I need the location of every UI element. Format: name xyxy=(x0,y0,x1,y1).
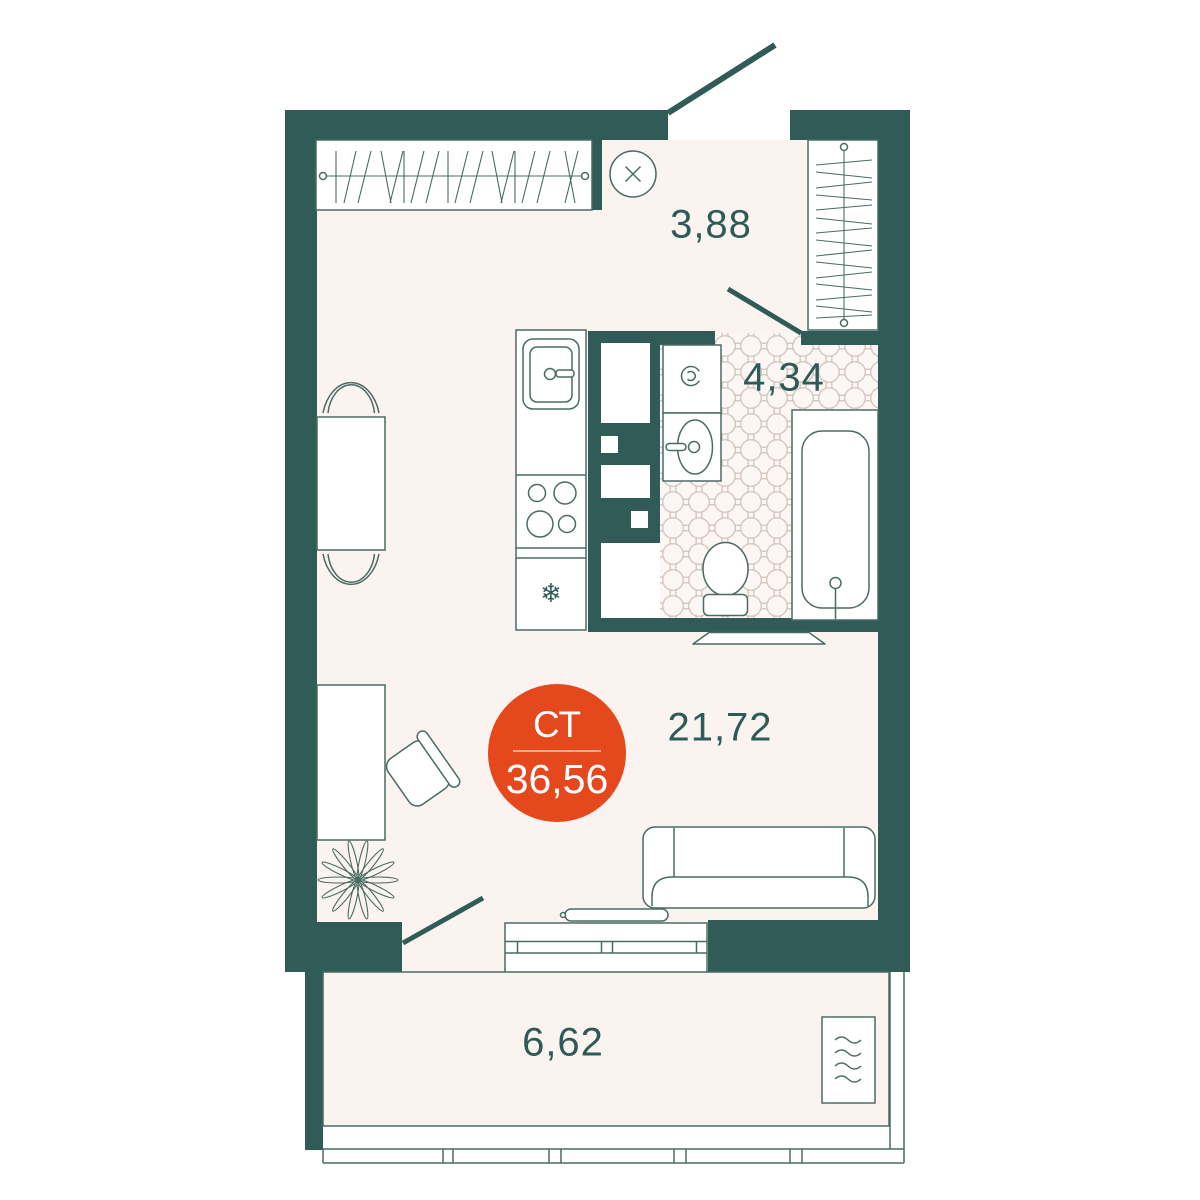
sofa-icon xyxy=(643,827,875,908)
plant-icon xyxy=(318,840,398,919)
wardrobe-icon xyxy=(316,140,592,210)
apartment-type-badge: СТ 36,56 xyxy=(488,684,626,822)
ceiling-light-icon xyxy=(610,151,656,197)
radiator-icon xyxy=(822,1017,875,1103)
floor-plan-canvas: ❄ 3,88 4,34 21,72 6,62 СТ 36,56 xyxy=(0,0,1200,1200)
bathroom-area-label: 4,34 xyxy=(743,356,825,401)
apartment-type-label: СТ xyxy=(533,706,581,743)
dining-table-icon xyxy=(317,383,385,585)
washing-machine-icon xyxy=(663,345,721,413)
bathroom-door-swing xyxy=(728,289,801,333)
vent-duct-openings xyxy=(601,343,660,618)
badge-divider xyxy=(513,750,601,752)
living-room-area-label: 21,72 xyxy=(667,706,772,751)
wall-tv-icon xyxy=(693,633,825,645)
fridge-snowflake-icon: ❄ xyxy=(540,579,562,609)
entrance-door-swing xyxy=(668,45,775,113)
dining-chair-top xyxy=(323,383,379,413)
balcony-area-label: 6,62 xyxy=(522,1021,604,1066)
closet-icon xyxy=(808,140,878,330)
balcony-door-swing xyxy=(403,898,483,943)
desk-icon xyxy=(317,685,385,840)
tv-stand-icon xyxy=(505,923,707,973)
balcony-floor xyxy=(323,972,889,1126)
dining-chair-bottom xyxy=(323,554,379,584)
tv-icon xyxy=(561,909,669,921)
bathtub-icon xyxy=(792,410,878,620)
bathroom-sink-icon xyxy=(663,413,721,481)
office-chair-icon xyxy=(380,729,462,814)
toilet-icon xyxy=(703,543,748,616)
total-area-label: 36,56 xyxy=(506,759,609,800)
hallway-area-label: 3,88 xyxy=(670,203,752,248)
